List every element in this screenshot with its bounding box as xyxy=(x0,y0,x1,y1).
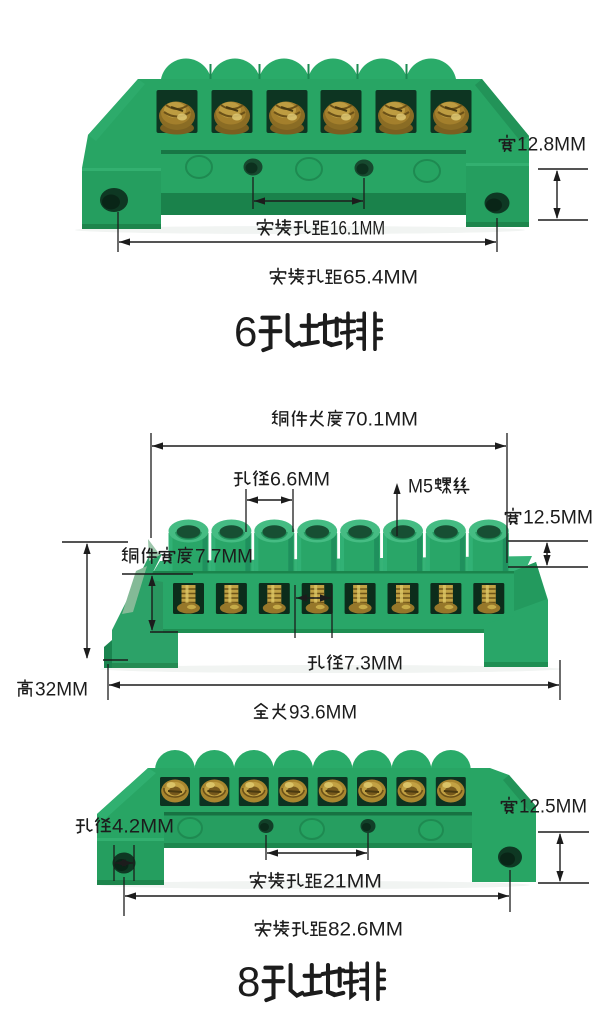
svg-text:6.6MM: 6.6MM xyxy=(270,470,330,491)
svg-text:8: 8 xyxy=(237,958,260,1005)
svg-text:12.5MM: 12.5MM xyxy=(523,508,593,529)
svg-text:12.8MM: 12.8MM xyxy=(517,135,586,156)
svg-text:21MM: 21MM xyxy=(323,872,382,893)
svg-text:6: 6 xyxy=(234,308,257,355)
svg-text:32MM: 32MM xyxy=(35,680,88,701)
svg-text:65.4MM: 65.4MM xyxy=(343,268,418,289)
svg-text:82.6MM: 82.6MM xyxy=(328,920,403,941)
svg-text:M5: M5 xyxy=(408,477,433,498)
svg-text:93.6MM: 93.6MM xyxy=(289,703,357,724)
svg-text:12.5MM: 12.5MM xyxy=(519,797,587,818)
svg-text:4.2MM: 4.2MM xyxy=(112,817,174,838)
svg-text:70.1MM: 70.1MM xyxy=(345,410,418,431)
svg-text:7.7MM: 7.7MM xyxy=(195,547,253,568)
svg-text:16.1MM: 16.1MM xyxy=(330,219,385,240)
svg-text:7.3MM: 7.3MM xyxy=(344,654,403,675)
